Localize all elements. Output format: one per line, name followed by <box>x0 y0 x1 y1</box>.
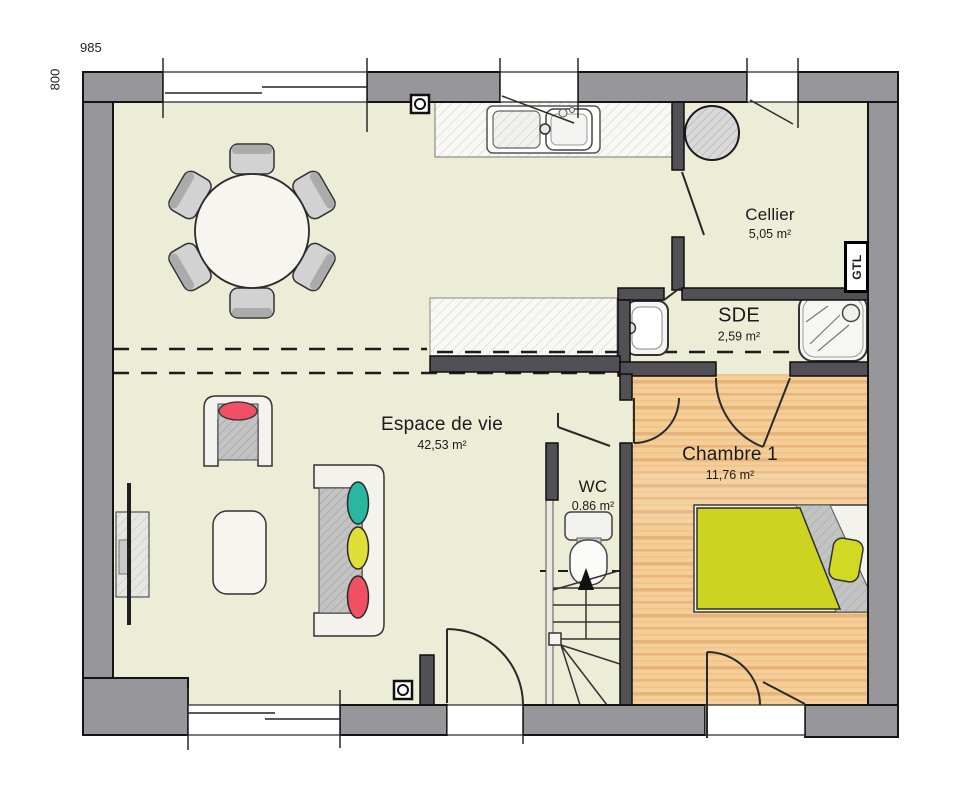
dining-chair-icon <box>230 144 274 174</box>
room-area: 2,59 m² <box>718 330 760 344</box>
room-area: 11,76 m² <box>682 468 778 482</box>
room-label-cellier: Cellier 5,05 m² <box>745 205 795 241</box>
sofa-cushion-teal <box>348 482 369 524</box>
room-area: 5,05 m² <box>745 227 795 241</box>
tv-screen <box>127 483 131 625</box>
window-icon <box>188 705 340 735</box>
sofa-icon <box>314 465 384 636</box>
window-icon <box>500 72 578 102</box>
dining-table-icon <box>195 174 309 288</box>
floor-plan-drawing <box>0 0 960 791</box>
room-label-sde: SDE 2,59 m² <box>718 305 760 344</box>
room-label-bedroom: Chambre 1 11,76 m² <box>682 444 778 482</box>
room-area: 42,53 m² <box>381 438 503 452</box>
armchair-cushion <box>219 402 257 420</box>
shower-icon <box>799 294 867 361</box>
room-name: Chambre 1 <box>682 444 778 466</box>
entrance-door-opening <box>447 705 523 735</box>
window-icon <box>747 72 798 102</box>
gtl-box: GTL <box>844 241 869 293</box>
sofa-cushion-yellow <box>348 527 369 569</box>
room-area: 0.86 m² <box>572 499 614 513</box>
room-label-wc: WC 0.86 m² <box>572 477 614 513</box>
shower-drain <box>843 305 860 322</box>
faucet-icon <box>540 124 550 134</box>
kitchen-counter-icon <box>435 101 672 157</box>
dimension-height-label: 800 <box>48 65 63 95</box>
bed-pillow <box>828 537 865 584</box>
island-counter-icon <box>430 298 617 356</box>
gtl-label: GTL <box>850 254 864 280</box>
window-icon <box>705 705 805 735</box>
water-heater-icon <box>685 106 739 160</box>
coffee-table-icon <box>213 511 266 594</box>
electrical-symbol-icon <box>411 95 429 113</box>
room-name: WC <box>572 477 614 497</box>
bed-icon <box>694 505 868 612</box>
electrical-symbol-icon <box>394 681 412 699</box>
room-name: Espace de vie <box>381 414 503 436</box>
dining-chair-icon <box>230 288 274 318</box>
dimension-width-label: 985 <box>80 40 102 55</box>
floor-plan: 985 800 Espace de vie 42,53 m² Cellier 5… <box>0 0 960 791</box>
room-label-living: Espace de vie 42,53 m² <box>381 414 503 452</box>
window-icon <box>163 72 367 102</box>
sofa-cushion-red <box>348 576 369 618</box>
room-name: Cellier <box>745 205 795 225</box>
armchair-icon <box>204 396 272 466</box>
room-name: SDE <box>718 305 760 328</box>
